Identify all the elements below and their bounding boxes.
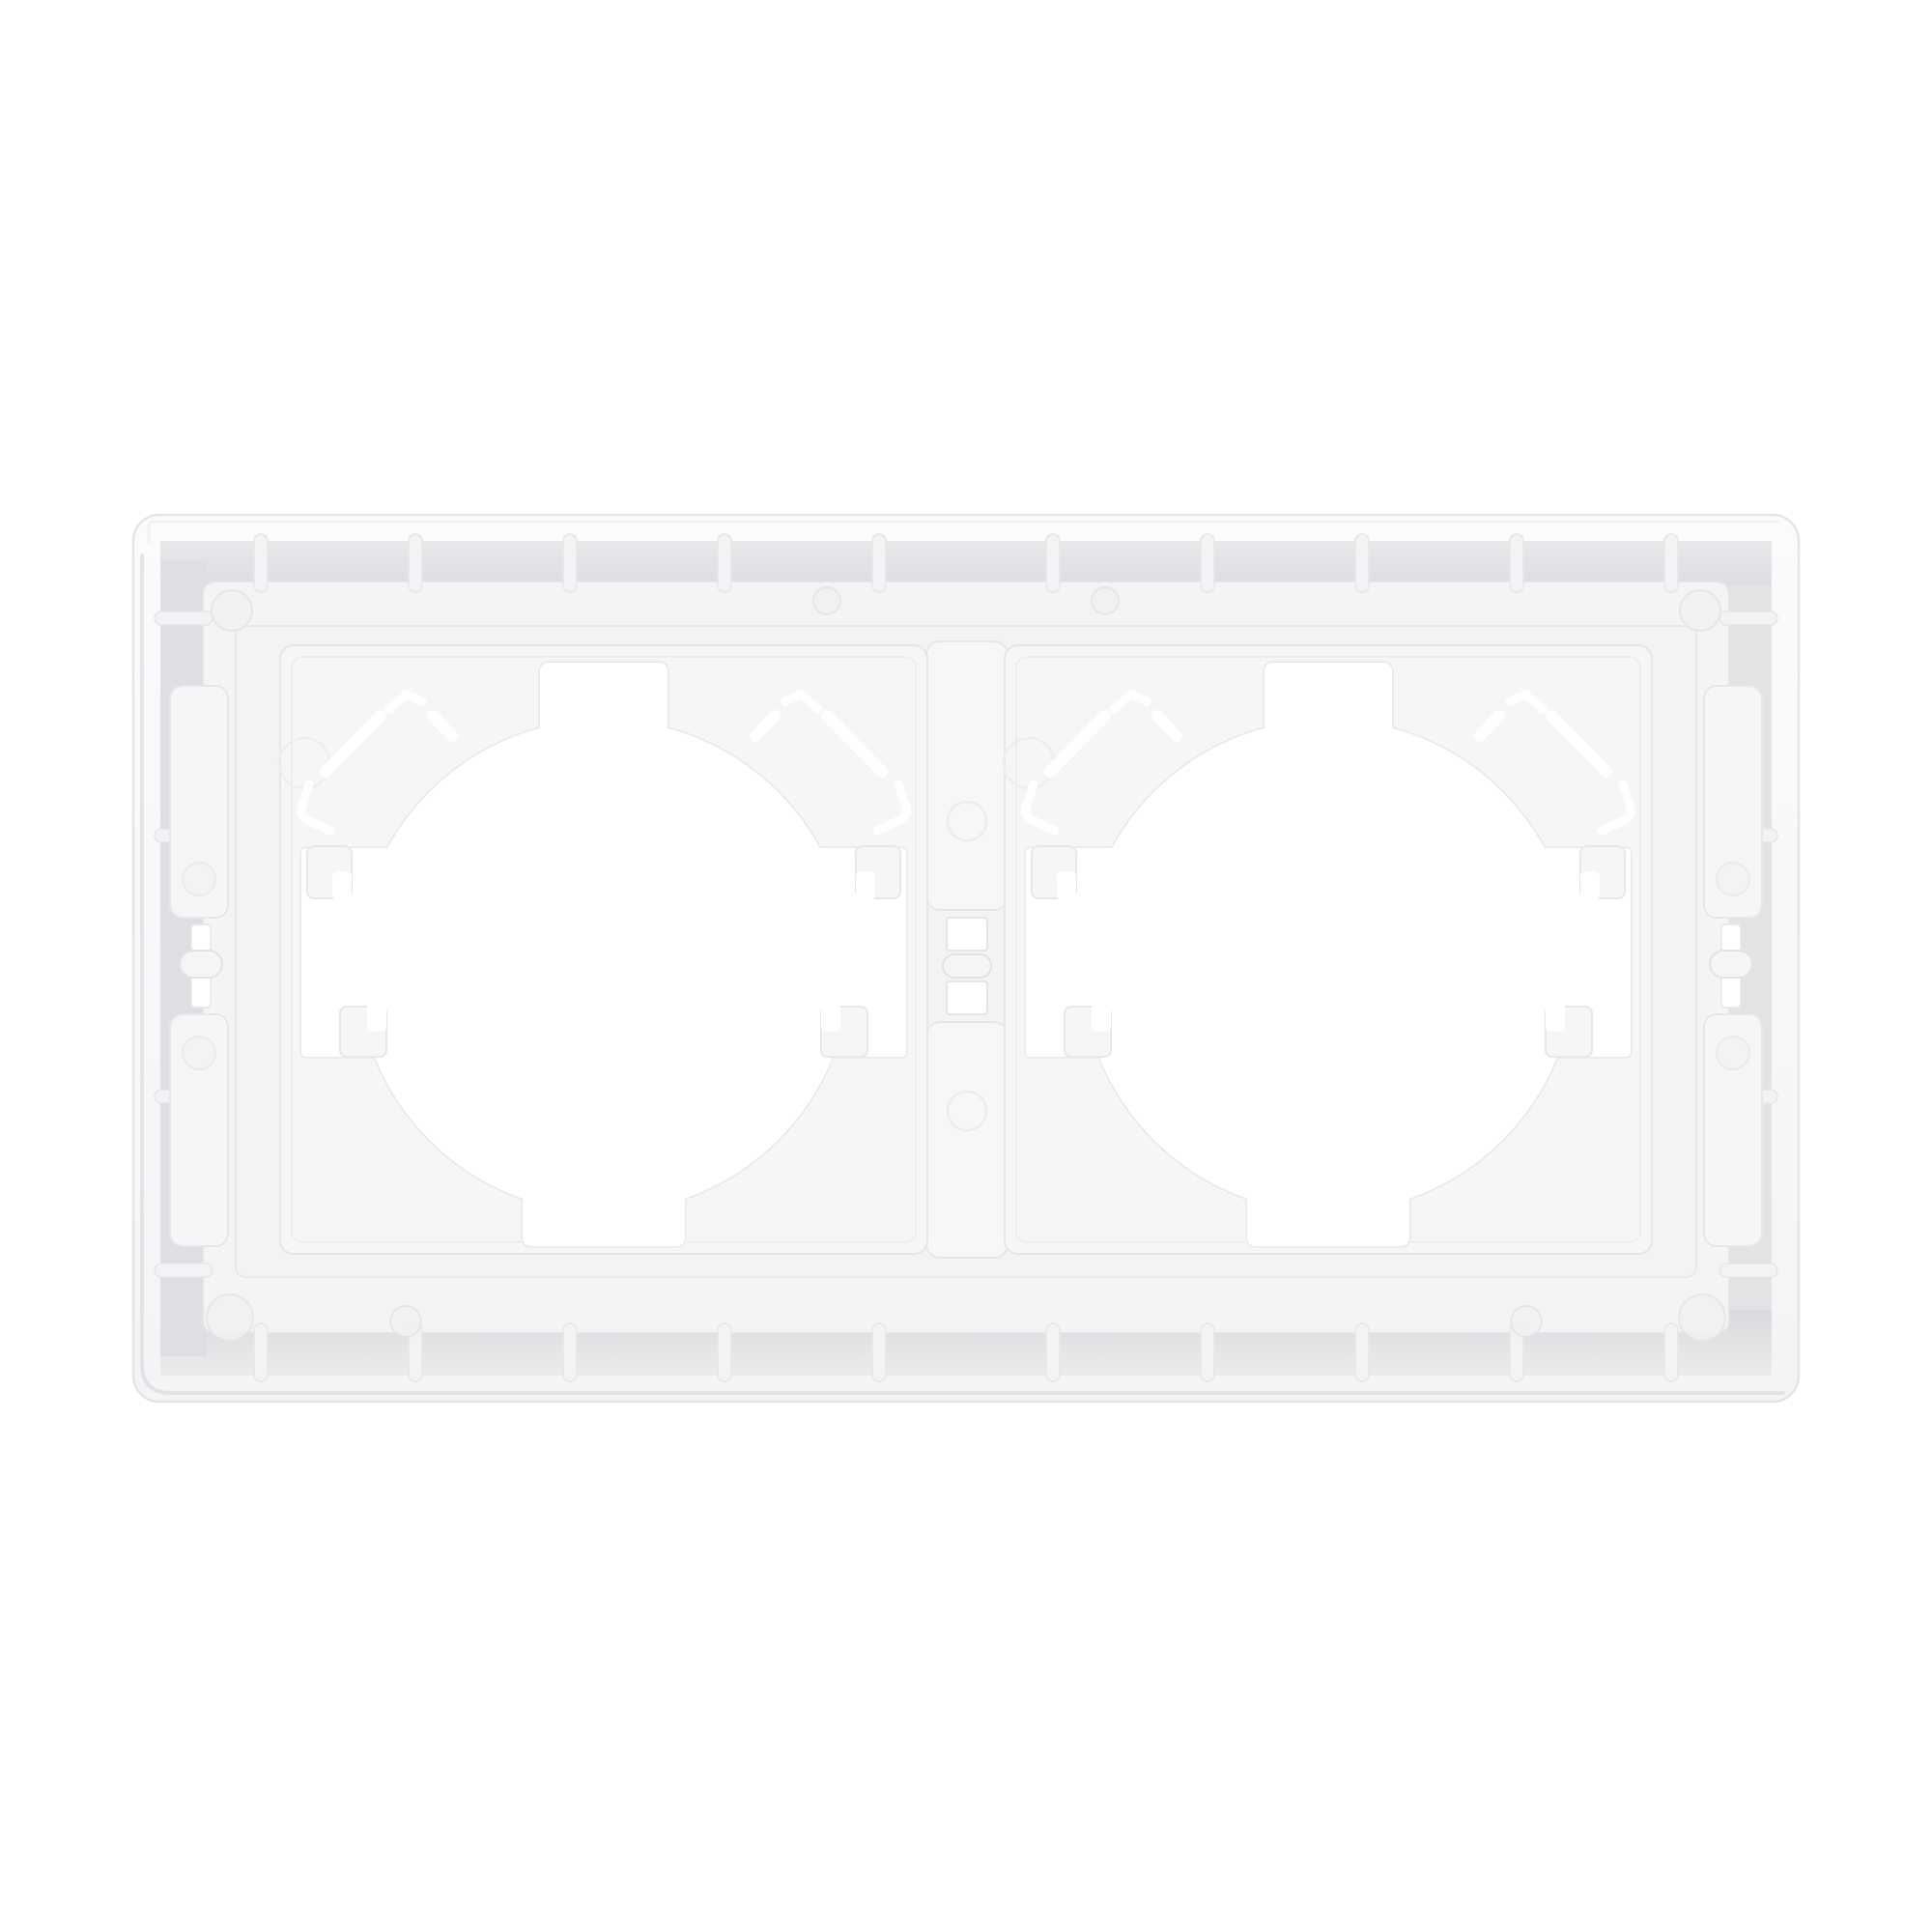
bridge-latch-pin (943, 954, 991, 978)
latch-pin-right (1710, 951, 1752, 978)
module-opening-left (279, 645, 927, 1254)
page (0, 0, 1932, 1932)
product-photo (0, 0, 1932, 1932)
latch-pin-left (180, 951, 222, 978)
module-opening-right (1004, 645, 1652, 1254)
